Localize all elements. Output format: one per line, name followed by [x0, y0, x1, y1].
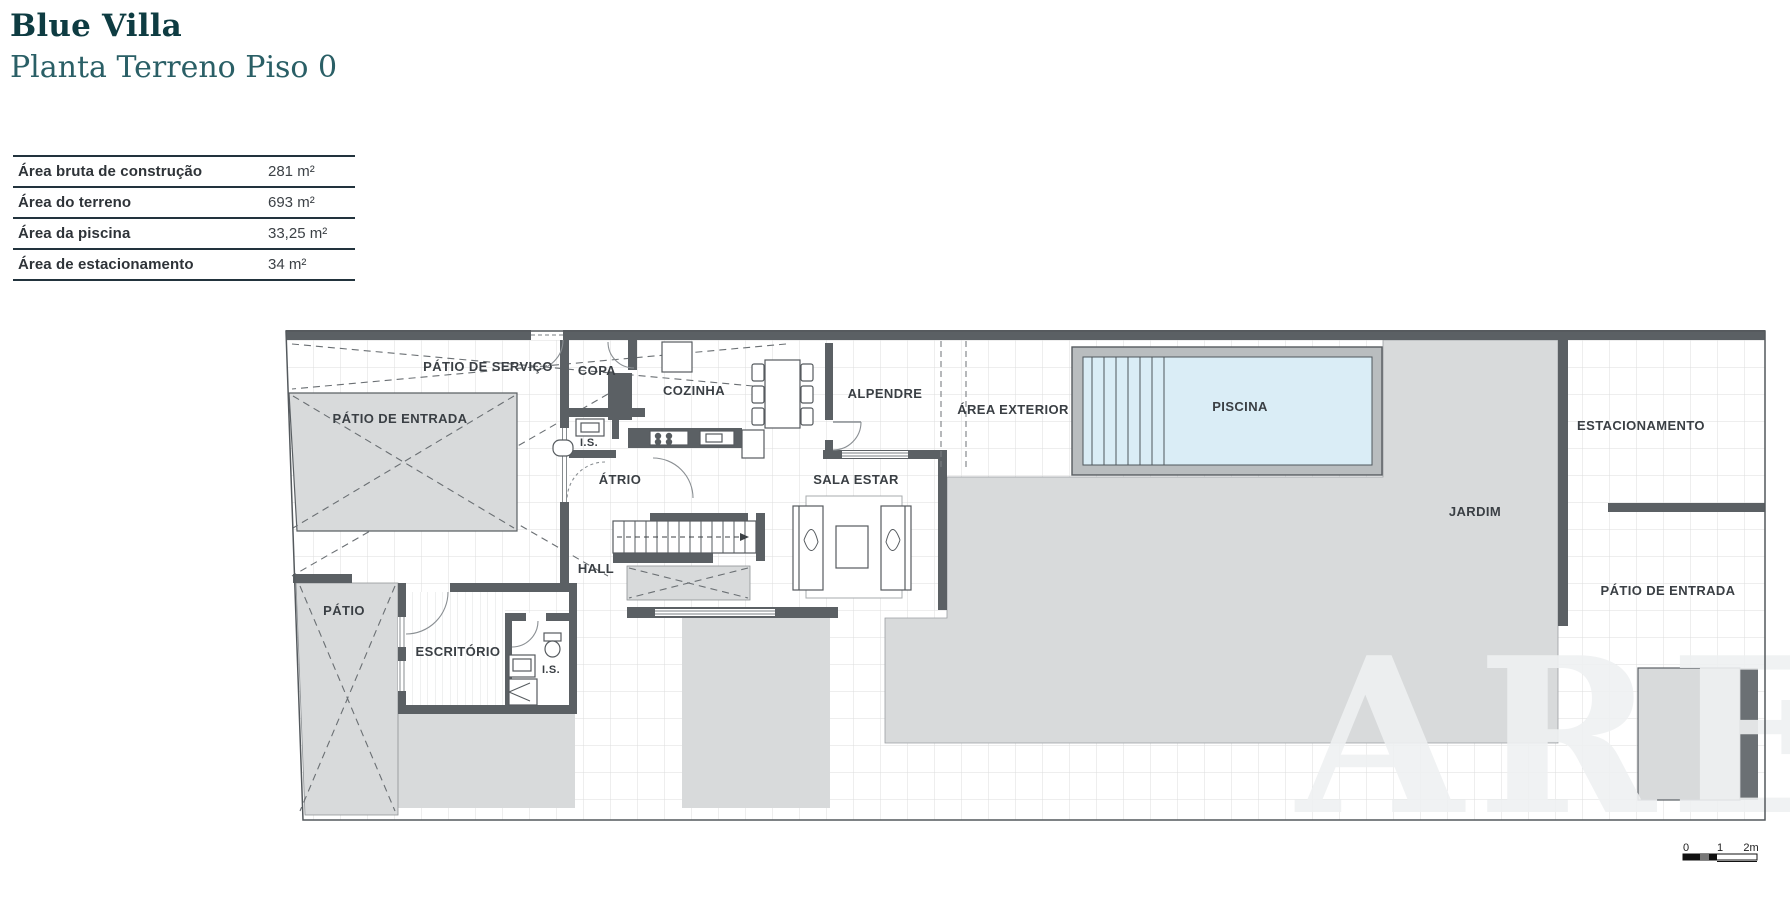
water-heater: [553, 440, 573, 456]
below-living-zone: [682, 618, 830, 808]
dining-chair: [752, 408, 764, 425]
scale-tick-0: 0: [1683, 842, 1689, 854]
room-label-area-exterior: ÁREA EXTERIOR: [957, 402, 1069, 417]
room-label-copa: COPA: [578, 363, 616, 378]
toilet: [545, 641, 560, 657]
room-label-is-escritorio: I.S.: [542, 664, 560, 676]
floor-plan-page: Blue Villa Planta Terreno Piso 0 Área br…: [0, 0, 1790, 902]
stairs: [613, 521, 756, 553]
room-label-atrio: ÁTRIO: [599, 472, 641, 487]
shower: [509, 679, 537, 705]
room-label-jardim: JARDIM: [1449, 504, 1501, 519]
room-label-estacionamento: ESTACIONAMENTO: [1577, 418, 1705, 433]
room-label-cozinha: COZINHA: [663, 383, 725, 398]
dining-chair: [801, 386, 813, 403]
coffee-table: [836, 526, 868, 568]
room-label-sala-estar: SALA ESTAR: [813, 472, 899, 487]
toilet-tank: [544, 633, 561, 641]
room-label-patio: PÁTIO: [323, 603, 365, 618]
watermark-text: ARE: [1294, 610, 1790, 863]
scale-tick-1: 1: [1717, 842, 1723, 854]
room-label-alpendre: ALPENDRE: [848, 386, 923, 401]
room-label-piscina: PISCINA: [1212, 399, 1268, 414]
room-label-patio-de-entrada-direita: PÁTIO DE ENTRADA: [1601, 583, 1736, 598]
room-label-escritorio: ESCRITÓRIO: [416, 644, 501, 659]
dining-chair: [752, 364, 764, 381]
floor-plan-drawing: PÁTIO DE SERVIÇO PÁTIO DE ENTRADA COPA C…: [0, 0, 1790, 902]
dining-chair: [801, 364, 813, 381]
kitchen-cabinet: [742, 430, 764, 458]
room-label-patio-de-servico: PÁTIO DE SERVIÇO: [423, 359, 553, 374]
scale-tick-2: 2m: [1743, 842, 1758, 854]
pantry-cabinet: [662, 342, 692, 372]
room-label-hall: HALL: [578, 561, 614, 576]
room-label-is-piso0: I.S.: [580, 437, 598, 449]
dining-chair: [801, 408, 813, 425]
dining-table: [765, 360, 800, 428]
room-label-patio-de-entrada: PÁTIO DE ENTRADA: [333, 411, 468, 426]
dining-chair: [752, 386, 764, 403]
